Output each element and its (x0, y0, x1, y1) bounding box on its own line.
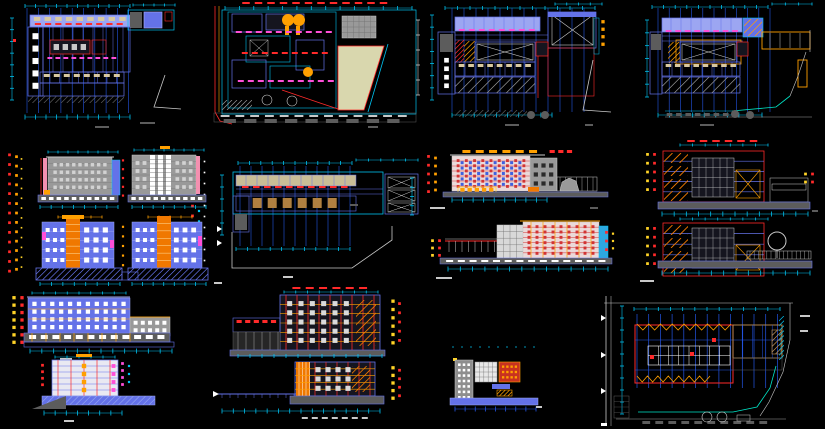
cad-model-space-canvas[interactable] (0, 0, 825, 429)
floor-plan-1 (10, 4, 181, 129)
section-east (116, 216, 220, 287)
section-b (640, 218, 812, 283)
elevation-fragment (450, 347, 542, 412)
elevation-b (431, 221, 614, 279)
floor-plan-2 (430, 3, 611, 127)
floor-plan-3 (645, 3, 812, 127)
section-west (24, 215, 138, 286)
section-d (230, 287, 422, 358)
site-plan (212, 2, 420, 124)
elevation-a (427, 150, 608, 209)
elevation-north (38, 151, 120, 210)
cad-viewport (0, 0, 825, 429)
plan-middle (217, 159, 418, 269)
elevation-c (12, 292, 174, 361)
elevation-south (128, 146, 206, 209)
section-a (646, 140, 814, 217)
roof-plan (601, 296, 825, 426)
section-c (32, 354, 164, 422)
section-e (213, 362, 401, 419)
